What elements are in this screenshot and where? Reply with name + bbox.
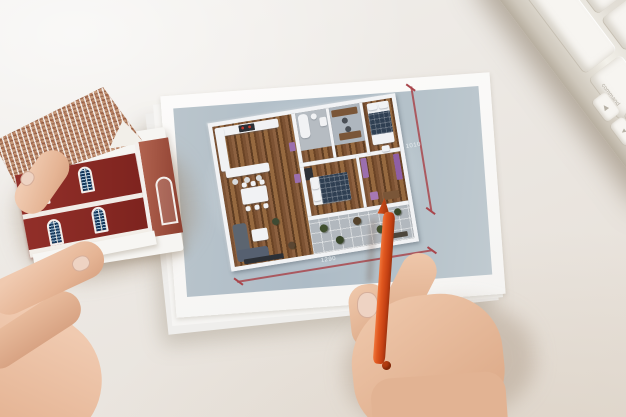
floor-plan-print-area: 1290 1010 — [173, 86, 492, 297]
dining-chair — [259, 179, 265, 185]
coffee-table — [251, 227, 269, 241]
pillow — [311, 179, 320, 190]
pouf — [370, 191, 379, 200]
plant — [288, 241, 296, 249]
dining-chair — [263, 203, 269, 209]
bar-stool — [232, 178, 239, 185]
pillow — [313, 190, 322, 201]
wardrobe — [393, 153, 403, 180]
bedroom-desk — [383, 190, 400, 200]
dining-chair — [241, 182, 247, 188]
keyboard-arrow-key: ▼ — [609, 116, 626, 146]
desk-surface: 1290 1010 — [0, 0, 626, 417]
bed-blanket — [368, 110, 393, 135]
dining-chair — [250, 181, 256, 187]
hall-cabinet — [294, 173, 301, 183]
dining-table — [240, 185, 268, 205]
keyboard: TYUIOP[]GHJKL;'BNM,./commandoption ◀▲▼▶ — [477, 0, 626, 202]
dining-chair — [245, 206, 251, 212]
right-hand-wrist — [370, 370, 510, 417]
keyboard-arrow-key: ◀ — [591, 92, 620, 123]
kitchen-island — [225, 162, 270, 178]
house-window — [90, 206, 109, 234]
house-arched-door — [154, 175, 178, 225]
keyboard-keys: TYUIOP[]GHJKL;'BNM,./commandoption — [502, 0, 626, 166]
plant — [272, 217, 280, 225]
floor-plan-paper: 1290 1010 — [160, 72, 505, 318]
bed-blanket — [318, 172, 351, 204]
dining-chair — [254, 204, 260, 210]
keyboard-arrow-cluster: ◀▲▼▶ — [591, 81, 626, 170]
house-window — [46, 218, 65, 246]
house-window — [77, 166, 96, 194]
toilet — [319, 117, 327, 127]
red-pen-end-cap — [382, 361, 391, 370]
hall-cabinet — [289, 142, 296, 152]
